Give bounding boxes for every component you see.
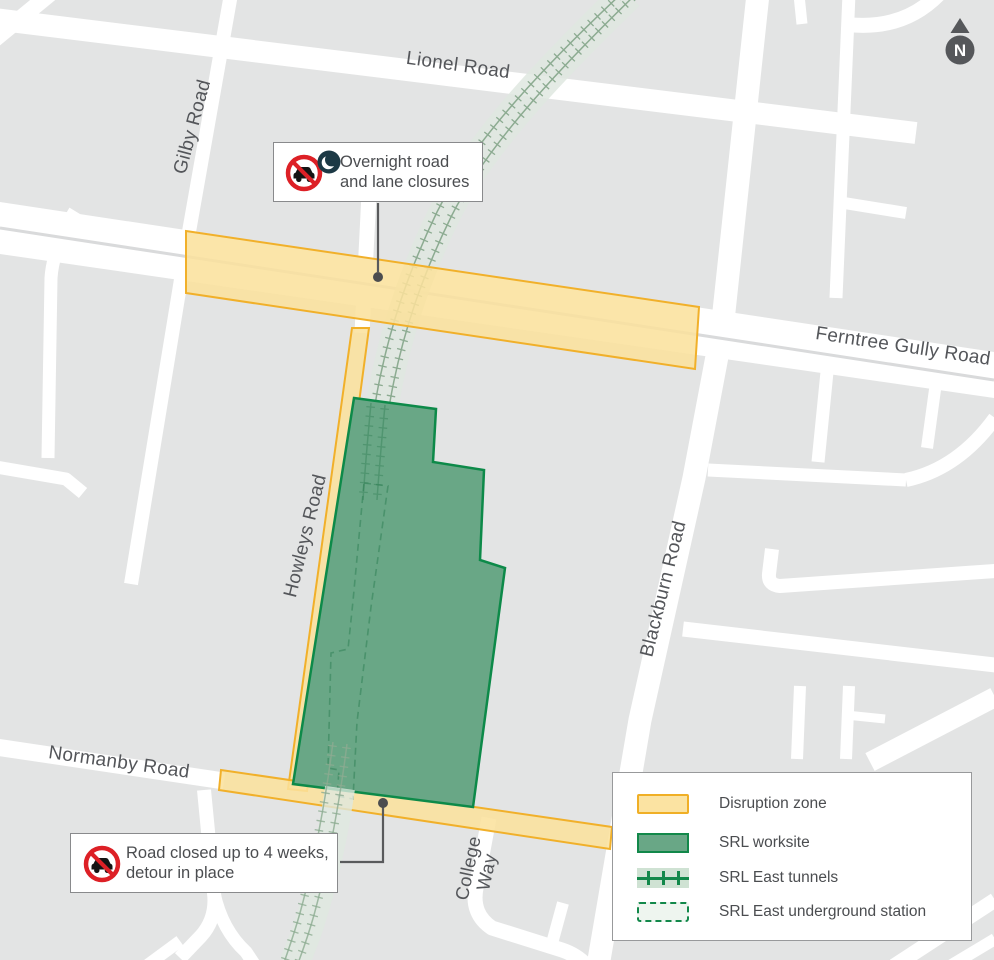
disruption-map: Lionel Road Gilby Road Ferntree Gully Ro…: [0, 0, 994, 960]
srl-worksite-area: [293, 398, 505, 807]
callout-overnight-closures: Overnight road and lane closures: [273, 142, 483, 202]
side-road: [846, 715, 885, 719]
map-legend: Disruption zone SRL worksite SRL East tu…: [612, 772, 972, 941]
callout-overnight-line1: Overnight road: [340, 152, 469, 172]
callout-road-closed-line1: Road closed up to 4 weeks,: [126, 843, 329, 863]
side-road: [769, 549, 994, 586]
lionel-road: [0, 19, 916, 133]
leader-dot: [373, 272, 383, 282]
side-road: [683, 629, 994, 665]
callout-road-closed-text: Road closed up to 4 weeks, detour in pla…: [126, 843, 329, 883]
side-road: [838, 202, 906, 213]
callout-road-closed: Road closed up to 4 weeks, detour in pla…: [70, 833, 338, 893]
callout-overnight-text: Overnight road and lane closures: [340, 152, 469, 192]
srl-east-tunnels-swatch: [637, 868, 689, 888]
srl-east-underground-station-swatch: [637, 902, 689, 922]
side-road: [708, 470, 906, 480]
side-road: [843, 0, 939, 25]
night-icon: [317, 150, 341, 174]
side-road: [950, 939, 994, 960]
normanby-road-west: [0, 747, 224, 781]
side-road: [146, 941, 180, 960]
side-road: [214, 893, 254, 960]
no-cars-icon: [83, 843, 123, 885]
leader-dot: [378, 798, 388, 808]
side-road: [870, 697, 994, 762]
callout-road-closed-line2: detour in place: [126, 863, 329, 883]
north-arrow-icon: N: [936, 12, 984, 68]
callout-overnight-line2: and lane closures: [340, 172, 469, 192]
legend-label: SRL worksite: [719, 833, 810, 853]
legend-label: SRL East tunnels: [719, 868, 838, 888]
side-road: [906, 418, 994, 480]
side-road: [797, 686, 800, 759]
legend-label: Disruption zone: [719, 794, 827, 814]
side-road: [799, 0, 802, 24]
side-road: [0, 467, 83, 493]
srl-worksite-swatch: [637, 833, 689, 853]
side-road: [818, 372, 827, 462]
disruption-zone-swatch: [637, 794, 689, 814]
side-road: [836, 0, 849, 298]
side-road: [551, 903, 563, 947]
north-letter: N: [954, 41, 966, 60]
side-road: [846, 686, 849, 759]
legend-label: SRL East underground station: [719, 902, 926, 922]
